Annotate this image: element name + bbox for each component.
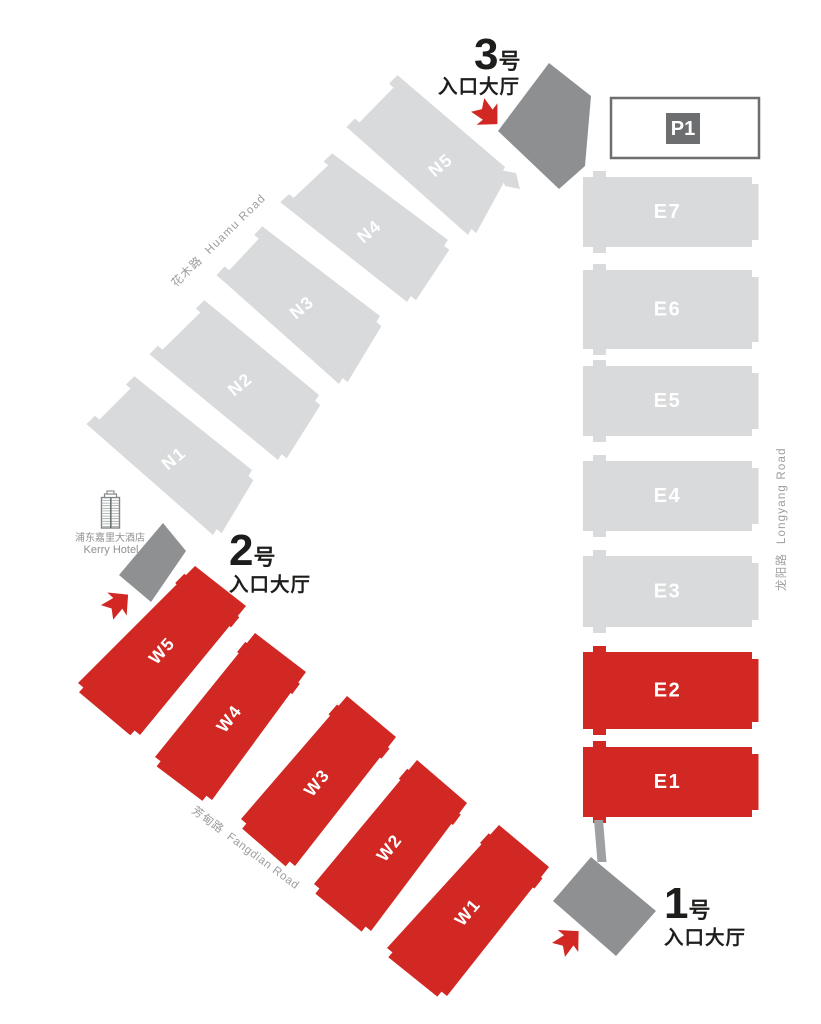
svg-text:P1: P1 <box>671 118 695 140</box>
svg-text:E6: E6 <box>654 299 681 321</box>
svg-text:入口大厅: 入口大厅 <box>438 75 520 98</box>
svg-text:E5: E5 <box>654 390 681 412</box>
svg-text:Kerry Hotel: Kerry Hotel <box>83 544 138 556</box>
svg-text:E3: E3 <box>654 581 681 603</box>
svg-text:E4: E4 <box>654 485 681 507</box>
svg-text:E2: E2 <box>654 680 681 702</box>
svg-text:E1: E1 <box>654 771 681 793</box>
svg-text:入口大厅: 入口大厅 <box>664 926 746 949</box>
svg-text:龙阳路 Longyang Road: 龙阳路 Longyang Road <box>774 447 788 591</box>
svg-text:入口大厅: 入口大厅 <box>229 573 311 596</box>
svg-text:浦东嘉里大酒店: 浦东嘉里大酒店 <box>75 531 145 544</box>
svg-text:E7: E7 <box>654 201 681 223</box>
